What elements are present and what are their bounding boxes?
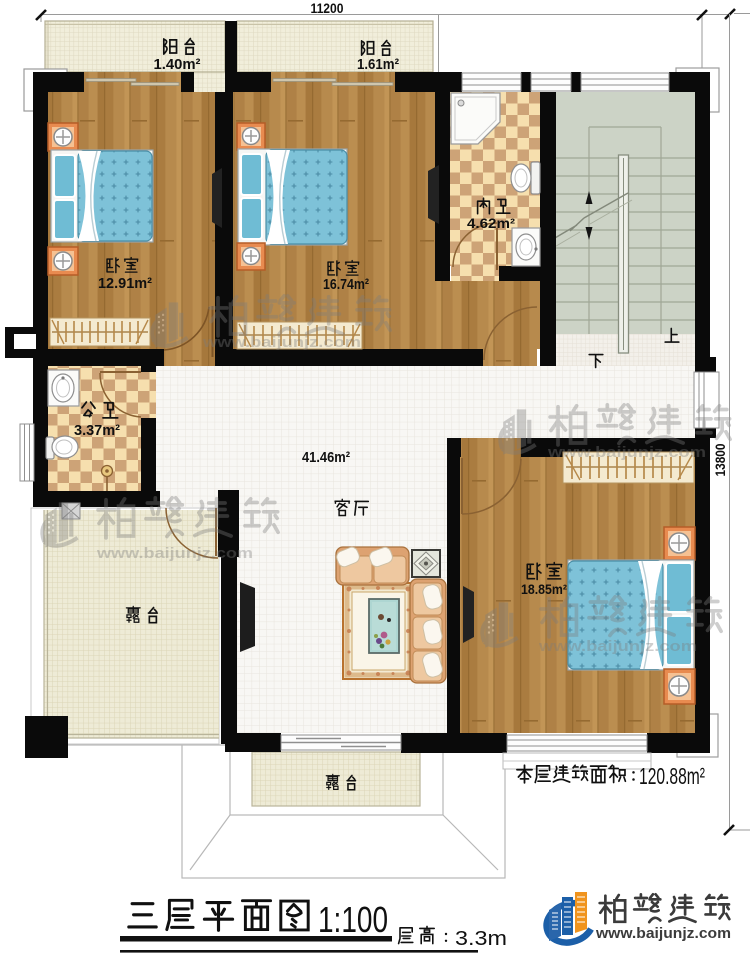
svg-text:4.62m²: 4.62m² <box>467 215 515 231</box>
svg-text:12.91m²: 12.91m² <box>98 275 152 292</box>
svg-text:www.baijunjz.com: www.baijunjz.com <box>595 925 731 942</box>
svg-text:3.3m: 3.3m <box>455 928 507 950</box>
svg-text:1:100: 1:100 <box>318 899 388 940</box>
svg-text:1.61m²: 1.61m² <box>357 56 399 73</box>
svg-text:3.37m²: 3.37m² <box>74 422 120 439</box>
svg-text:18.85m²: 18.85m² <box>521 581 567 597</box>
svg-text:16.74m²: 16.74m² <box>323 276 369 293</box>
svg-text:www.baijunjz.com: www.baijunjz.com <box>96 545 253 562</box>
svg-text:1.40m²: 1.40m² <box>154 56 201 73</box>
svg-text:www.baijunjz.com: www.baijunjz.com <box>538 638 697 655</box>
svg-text:13800: 13800 <box>712 443 728 476</box>
svg-text:www.baijunjz.com: www.baijunjz.com <box>202 334 361 351</box>
svg-text:11200: 11200 <box>311 0 344 16</box>
svg-text:120.88m²: 120.88m² <box>639 763 705 789</box>
svg-text:41.46m²: 41.46m² <box>302 449 350 466</box>
svg-text:www.baijunjz.com: www.baijunjz.com <box>547 444 706 461</box>
